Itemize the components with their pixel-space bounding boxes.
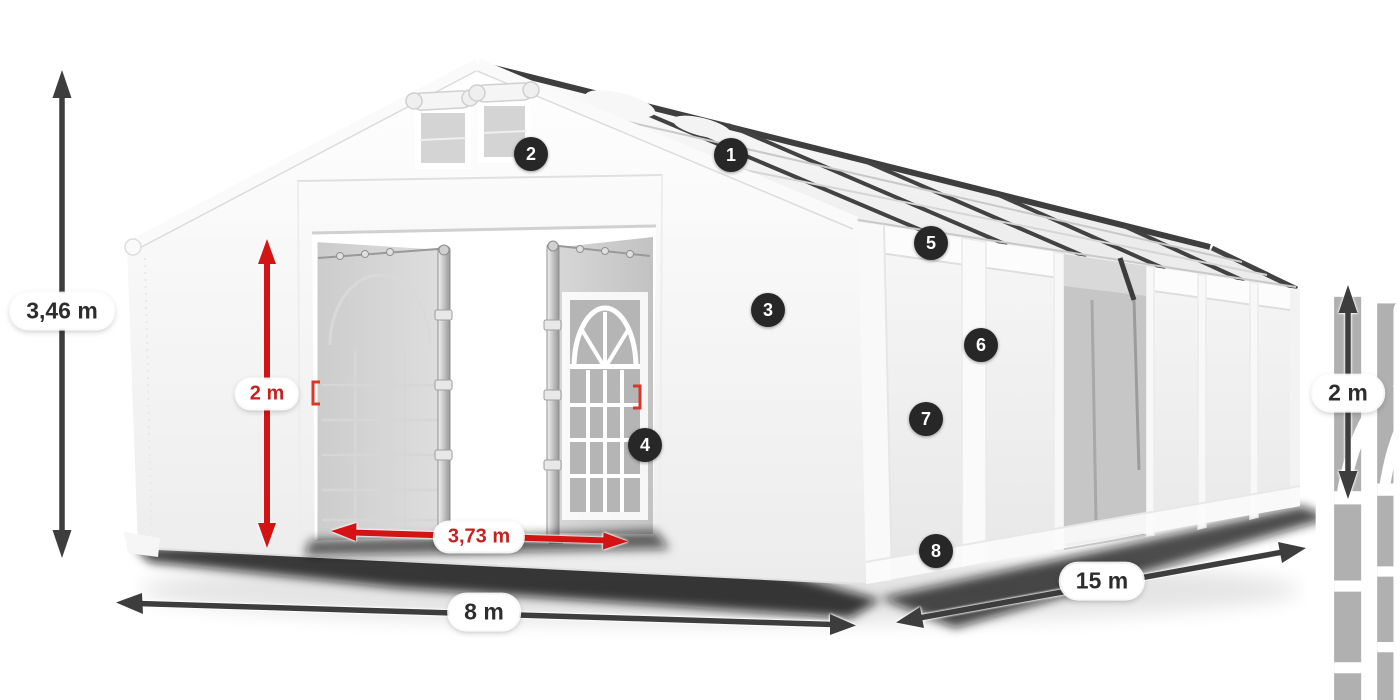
side-height-label: 2 m [1313,376,1383,411]
callout-badge-7[interactable]: 7 [909,402,943,436]
callout-badge-3[interactable]: 3 [751,293,785,327]
callout-badge-8[interactable]: 8 [919,534,953,568]
side-windows [1316,277,1400,700]
side-doorway [1064,254,1146,550]
entrance-width-label: 3,73 m [435,523,523,552]
gable-vent-left [406,90,478,166]
callout-badge-2[interactable]: 2 [514,137,548,171]
entrance-height-label: 2 m [237,380,297,409]
front-width-label: 8 m [449,595,519,630]
callout-badge-5[interactable]: 5 [914,226,948,260]
total-height-label: 3,46 m [11,294,113,329]
side-window-3 [1393,303,1400,700]
tent-illustration [0,0,1400,700]
front-doorway [312,226,656,548]
side-wall [858,220,1400,700]
callout-badge-1[interactable]: 1 [714,138,748,172]
callout-badge-6[interactable]: 6 [964,328,998,362]
callout-badge-4[interactable]: 4 [628,428,662,462]
tent-dimensions-diagram: 3,46 m 2 m 3,73 m 8 m 15 m 2 m 1 2 3 4 5… [0,0,1400,700]
left-door-flap [315,242,444,541]
side-length-label: 15 m [1061,564,1143,599]
